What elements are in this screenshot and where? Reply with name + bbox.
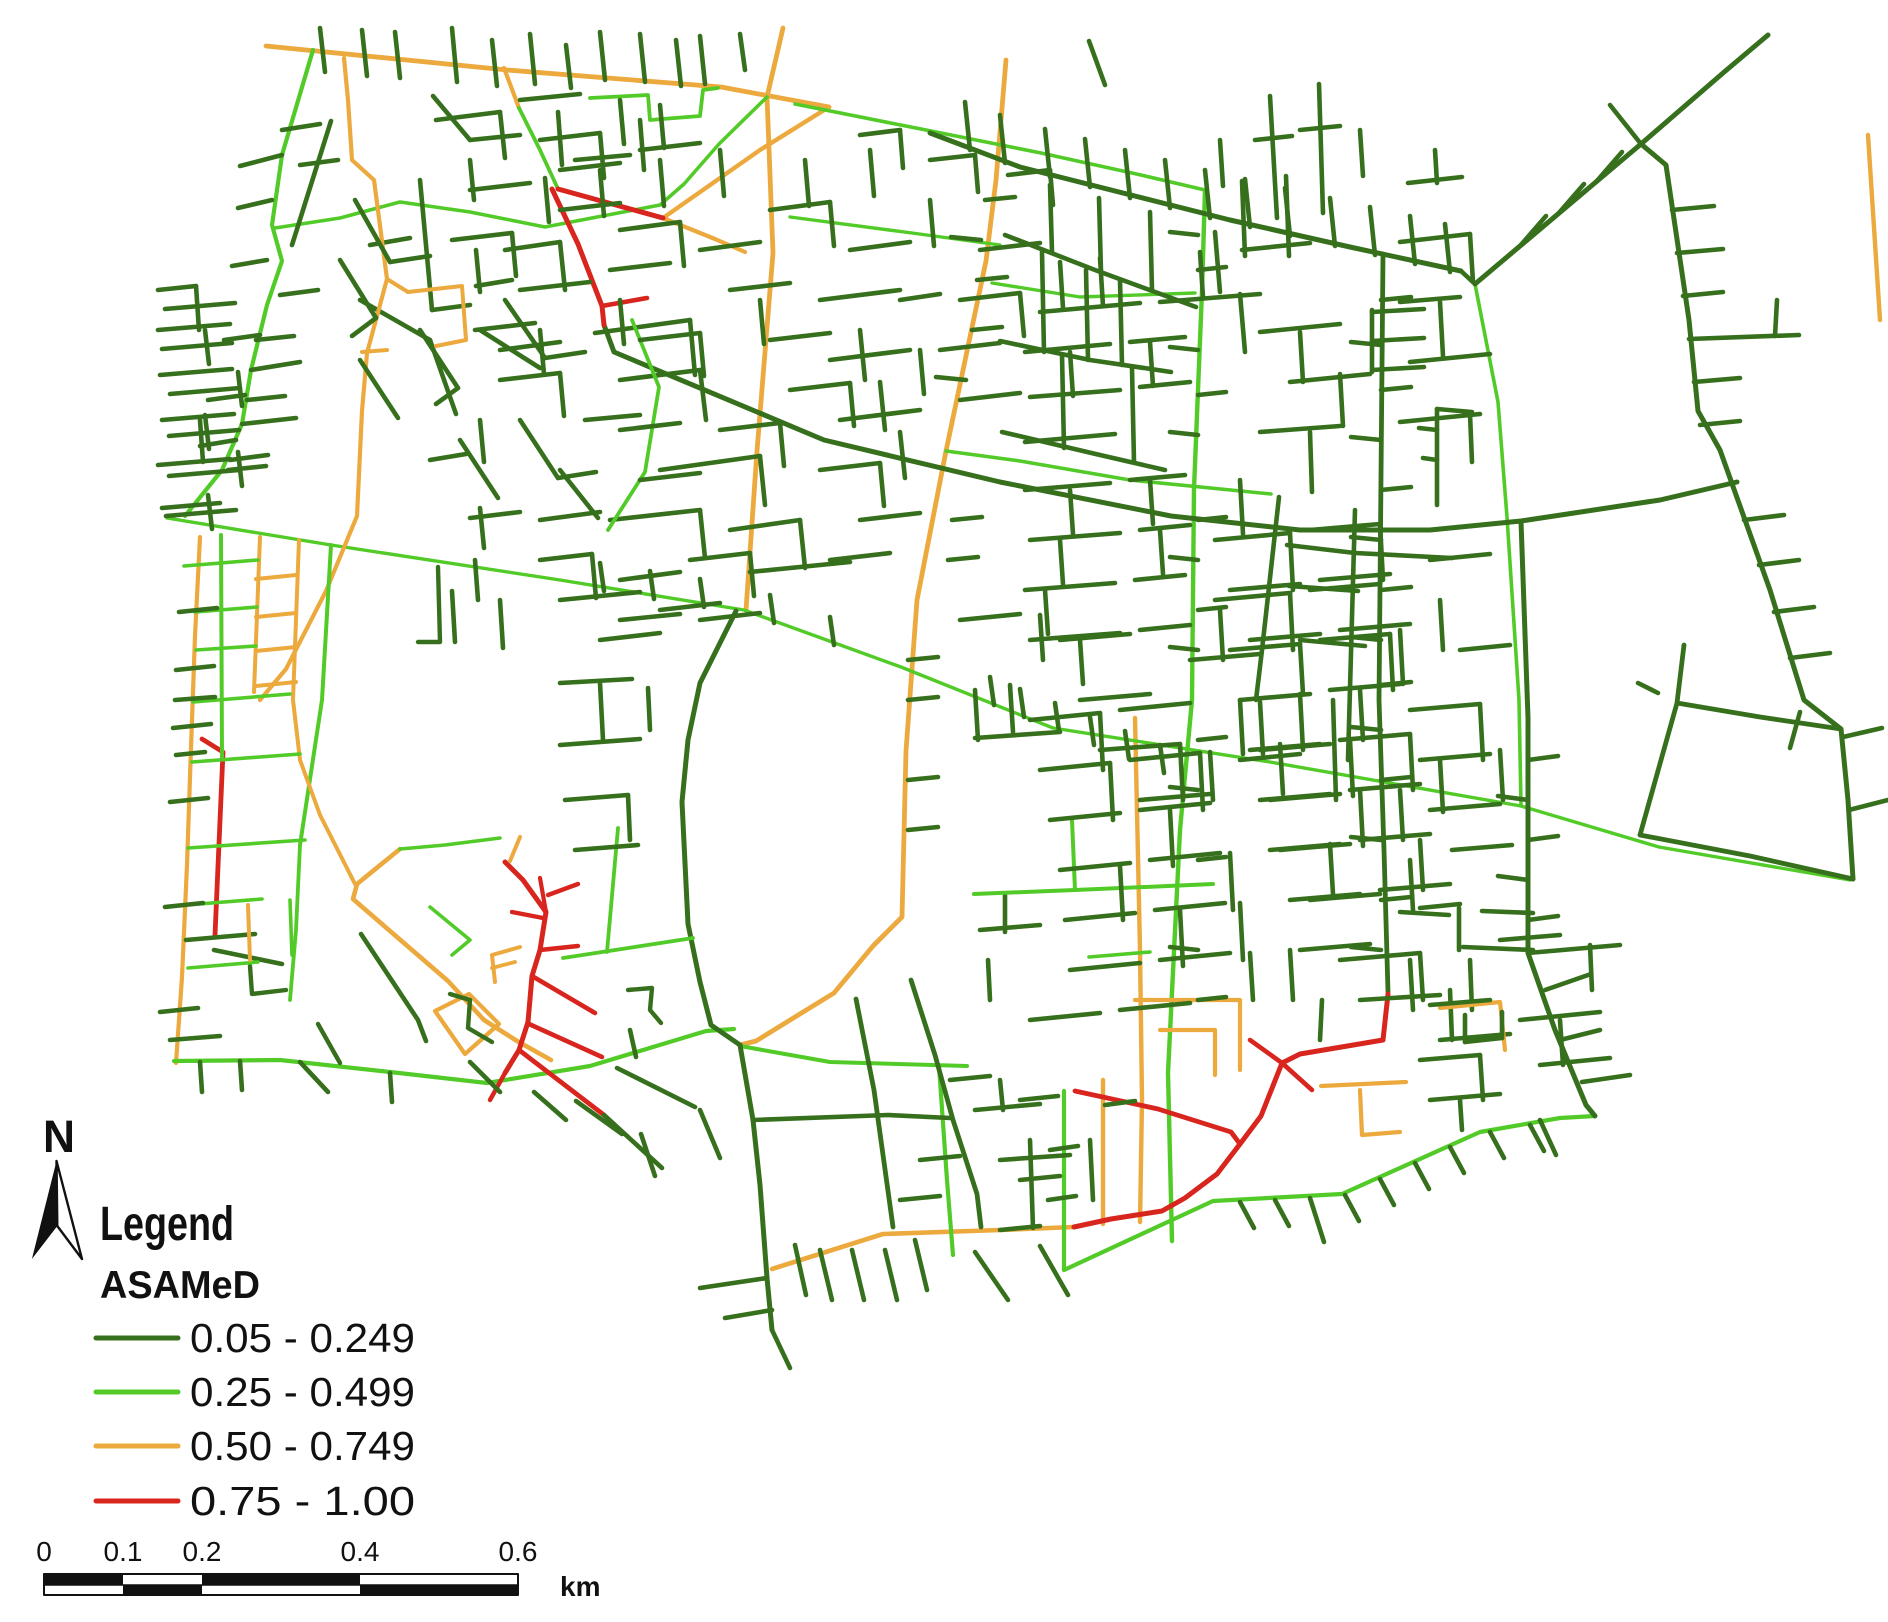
svg-text:0.25 - 0.499: 0.25 - 0.499 [190,1369,415,1415]
svg-text:0.50 - 0.749: 0.50 - 0.749 [190,1423,415,1469]
svg-text:km: km [560,1571,600,1602]
svg-text:0.2: 0.2 [183,1536,222,1567]
svg-text:0: 0 [36,1536,52,1567]
svg-text:0.1: 0.1 [104,1536,143,1567]
svg-text:Legend: Legend [100,1198,234,1251]
svg-text:0.75 - 1.00: 0.75 - 1.00 [190,1478,415,1524]
svg-text:0.05 - 0.249: 0.05 - 0.249 [190,1315,415,1361]
svg-text:N: N [43,1111,75,1162]
svg-text:0.6: 0.6 [499,1536,538,1567]
svg-text:ASAMeD: ASAMeD [100,1264,260,1307]
svg-text:0.4: 0.4 [341,1536,380,1567]
